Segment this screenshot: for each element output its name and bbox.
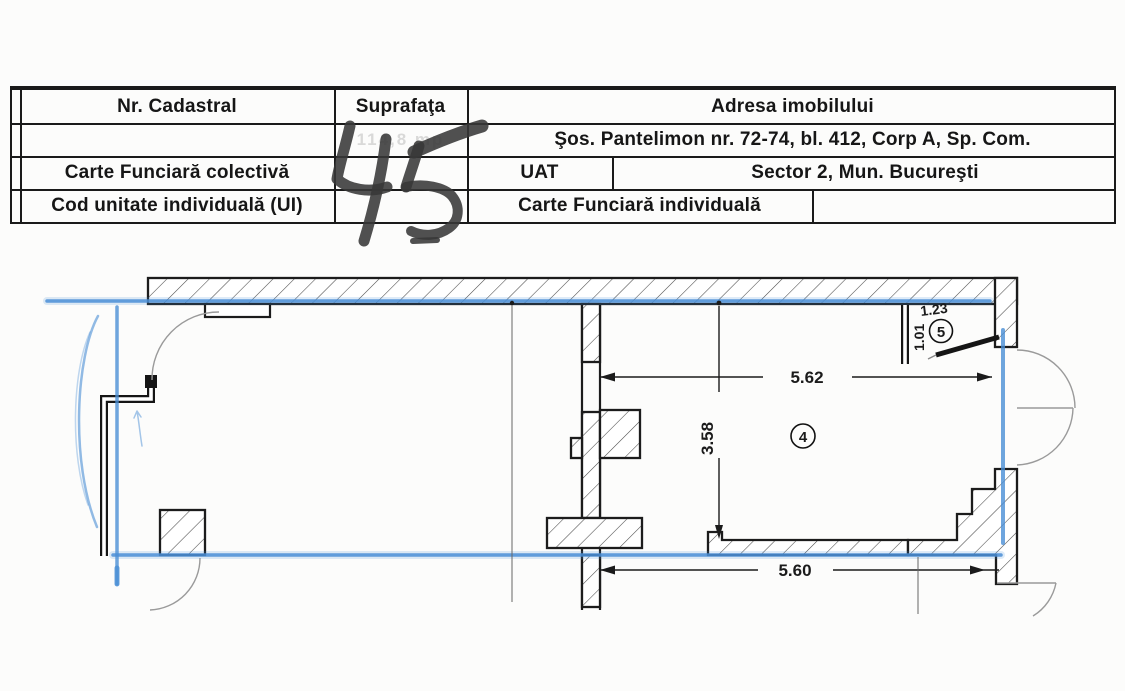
cell-cf-individuala-value [812, 189, 1118, 222]
cell-suprafata-header: Suprafaţa [334, 90, 467, 123]
middle-wall-seg [582, 412, 600, 518]
dim-arrow [970, 566, 985, 575]
door-stub [145, 375, 157, 388]
room5-label: 5 [937, 324, 945, 341]
dim-label-room5-width: 1.23 [919, 300, 948, 319]
dim-anchor-dot [717, 301, 722, 306]
dim-arrow [977, 373, 992, 382]
left-thin-wall [104, 381, 151, 556]
cell-cadastral-value [20, 123, 334, 156]
room5-door-leaf [936, 337, 999, 355]
dim-arrow [600, 566, 615, 575]
door-arc-bottom-left [150, 558, 200, 610]
middle-wall-cross [547, 518, 642, 548]
dim-label-width-top: 5.62 [790, 368, 823, 387]
dim-label-room5-height: 1.01 [911, 324, 927, 351]
dim-label-width-bottom: 5.60 [778, 561, 811, 580]
middle-wall-seg [582, 304, 600, 362]
door-arc-right-upper [1017, 350, 1075, 408]
top-wall-notch [205, 304, 270, 317]
cell-uat-value: Sector 2, Mun. Bucureşti [612, 156, 1118, 189]
cell-nr-cadastral-header: Nr. Cadastral [20, 90, 334, 123]
bottom-right-wall [908, 469, 1017, 584]
door-arc-right-lower [1017, 408, 1073, 465]
cell-uat-label: UAT [467, 156, 612, 189]
door-arc-top-left [152, 312, 219, 380]
blue-arrow-mark [134, 411, 142, 446]
column-pillar [160, 510, 205, 555]
cell-adresa-header: Adresa imobilului [467, 90, 1118, 123]
cell-address: Şos. Pantelimon nr. 72-74, bl. 412, Corp… [467, 123, 1118, 156]
left-thin-wall [104, 381, 151, 556]
dim-anchor-dot [510, 301, 514, 305]
door-arc-bottom-right [1033, 583, 1056, 616]
room5-door-hinge [928, 355, 936, 359]
cell-cf-individuala-label: Carte Funciară individuală [467, 189, 812, 222]
dim-arrow [600, 373, 615, 382]
middle-wall-pillar [600, 410, 640, 458]
cadastral-table: Nr. Cadastral Suprafaţa Adresa imobilulu… [10, 86, 1116, 224]
cell-cod-ui: Cod unitate individuală (UI) [20, 189, 334, 222]
room4-label: 4 [799, 429, 808, 446]
dim-label-height-mid: 3.58 [698, 422, 717, 455]
cell-cf-colectiva: Carte Funciară colectivă [20, 156, 334, 189]
middle-wall-notch [571, 438, 582, 458]
cell-suprafata-value: 114,8 mp [334, 123, 467, 156]
blue-scribble-arc [79, 316, 98, 527]
middle-wall-seg-low [582, 555, 600, 607]
